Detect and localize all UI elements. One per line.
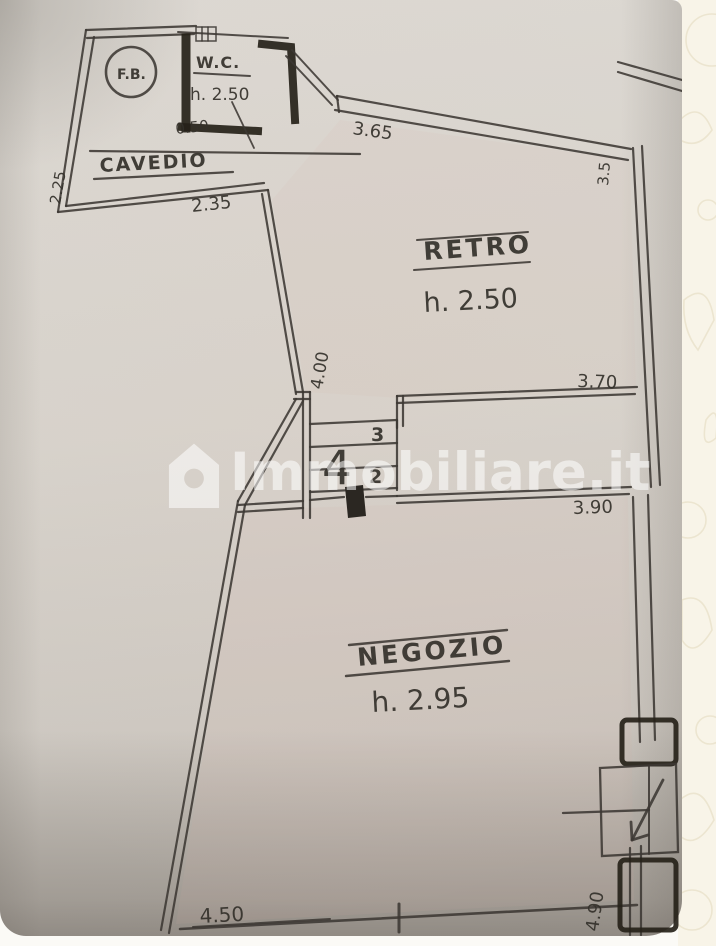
stair-step-3: 3 <box>371 424 384 446</box>
stair-step-2: 2 <box>369 466 382 488</box>
room-height-retro: h. 2.50 <box>423 283 519 319</box>
room-height-wc: h. 2.50 <box>190 85 249 105</box>
floor-plan-photo[interactable]: 3 2 4 <box>0 0 682 936</box>
floor-plan-drawing: 3 2 4 <box>0 0 682 936</box>
background-doodle-pattern <box>678 0 716 946</box>
room-height-negozio: h. 2.95 <box>371 681 470 719</box>
dim-retro-bottom: 3.70 <box>577 371 618 393</box>
fb-marker-label: F.B. <box>117 67 146 83</box>
screenshot-stage: 3 2 4 <box>0 0 716 946</box>
page-background-strip <box>678 0 716 946</box>
dim-negozio-bottom: 4.50 <box>199 902 245 928</box>
fb-marker: F.B. <box>106 47 156 97</box>
dim-negozio-right: 4.90 <box>582 890 608 933</box>
dim-negozio-top: 3.90 <box>572 497 613 519</box>
room-label-cavedio: CAVEDIO <box>99 149 208 177</box>
stair-step-4: 4 <box>322 441 352 496</box>
room-label-wc: W.C. <box>196 53 240 72</box>
dim-cavedio-bottom: 2.35 <box>190 192 232 217</box>
dim-retro-right: 3.5 <box>594 161 614 186</box>
dim-wc-width: 0.50 <box>175 117 210 138</box>
